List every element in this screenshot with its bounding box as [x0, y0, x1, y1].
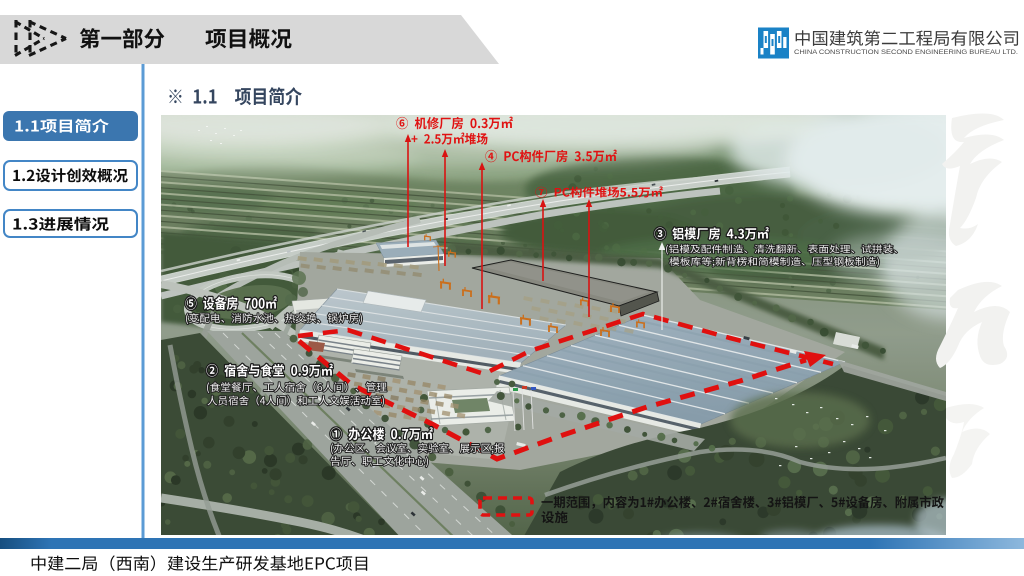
svg-text:CHINA CONSTRUCTION SECOND ENGI: CHINA CONSTRUCTION SECOND ENGINEERING BU…	[794, 49, 1018, 56]
